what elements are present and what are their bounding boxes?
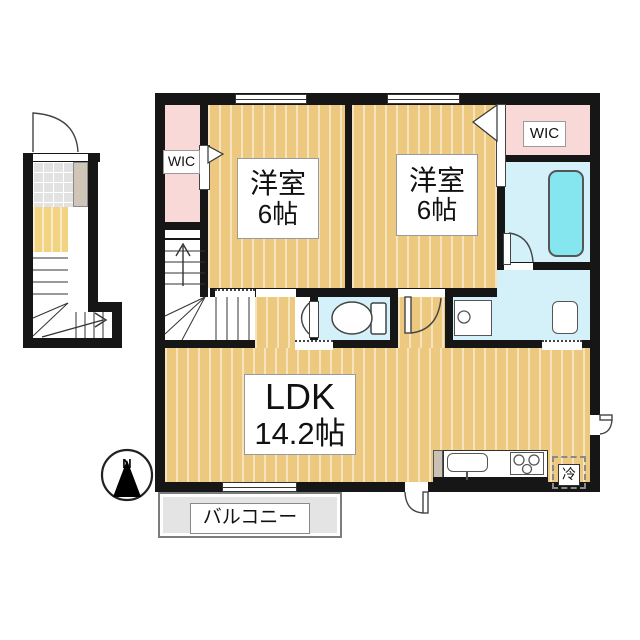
wall xyxy=(155,93,600,105)
open-passage xyxy=(295,340,333,350)
hallway xyxy=(255,297,295,348)
room-name: LDK xyxy=(265,378,335,417)
wall xyxy=(165,222,200,230)
wall xyxy=(345,104,352,297)
counter-base xyxy=(433,477,548,488)
window xyxy=(222,482,297,492)
wall xyxy=(200,104,208,297)
door-threshold xyxy=(398,289,445,297)
room-toilet xyxy=(318,297,390,340)
door-threshold xyxy=(33,154,88,161)
toilet-door-arc-icon xyxy=(302,303,310,334)
wall xyxy=(390,297,398,340)
refrigerator-label: 冷 xyxy=(558,464,580,486)
wall xyxy=(165,238,200,240)
balcony-label: バルコニー xyxy=(190,503,310,534)
room-label-ldk: LDK 14.2帖 xyxy=(244,374,356,455)
staircase xyxy=(165,240,205,297)
room-name: 洋室 xyxy=(250,169,306,199)
wall xyxy=(505,155,590,162)
room-name: バルコニー xyxy=(203,508,298,529)
entrance-door-arc-icon xyxy=(33,113,78,152)
room-label-wic-right: WIC xyxy=(523,121,566,147)
vanity-icon xyxy=(552,301,578,334)
room-label-wic-left: WIC xyxy=(163,150,200,174)
bathtub-icon xyxy=(548,170,584,257)
wall xyxy=(445,297,453,340)
staircase xyxy=(165,297,255,340)
room-name: WIC xyxy=(530,126,559,142)
window xyxy=(387,94,460,104)
entry-tile xyxy=(33,162,73,207)
stairs-1f xyxy=(98,312,112,338)
wall xyxy=(582,340,590,348)
open-passage xyxy=(542,340,582,350)
wall xyxy=(165,340,255,348)
room-label-bedroom-2: 洋室 6帖 xyxy=(396,154,478,236)
room-size: 6帖 xyxy=(258,200,298,228)
kitchen-end-panel xyxy=(433,450,443,480)
shoe-cabinet xyxy=(73,162,88,207)
hallway xyxy=(398,297,445,348)
wall xyxy=(88,153,98,308)
room-label-bedroom-1: 洋室 6帖 xyxy=(237,158,319,239)
room-size: 14.2帖 xyxy=(254,417,345,450)
kitchen-sink-icon xyxy=(447,453,488,472)
wall xyxy=(23,338,122,348)
room-name: 洋室 xyxy=(409,166,465,196)
entry-hall xyxy=(33,207,68,252)
door-threshold xyxy=(405,482,428,492)
compass-north-label: N xyxy=(122,456,131,471)
fixture-name: 冷 xyxy=(562,467,576,482)
wall xyxy=(333,340,398,348)
open-passage xyxy=(256,289,296,297)
stairs-1f xyxy=(33,252,88,338)
ldk-bottom-door-arc-icon xyxy=(405,492,423,513)
door-threshold xyxy=(590,415,600,435)
stair-landing xyxy=(165,229,200,238)
ldk-side-door-arc-icon xyxy=(600,420,612,434)
door-leaf xyxy=(503,233,511,265)
window xyxy=(235,94,307,104)
wall xyxy=(23,153,33,348)
open-passage xyxy=(215,289,255,299)
floor-plan: 洋室 6帖 洋室 6帖 LDK 14.2帖 WIC WIC バルコニー 冷 xyxy=(0,0,640,640)
folding-door-leaf xyxy=(199,145,210,190)
stove-icon xyxy=(510,452,544,475)
room-name: WIC xyxy=(168,154,195,169)
wall xyxy=(445,340,542,348)
room-size: 6帖 xyxy=(417,196,457,224)
folding-door-leaf xyxy=(496,104,506,187)
door-leaf xyxy=(309,301,319,338)
compass-rose-icon: N xyxy=(102,450,152,500)
washing-machine-pan-icon xyxy=(454,300,492,336)
